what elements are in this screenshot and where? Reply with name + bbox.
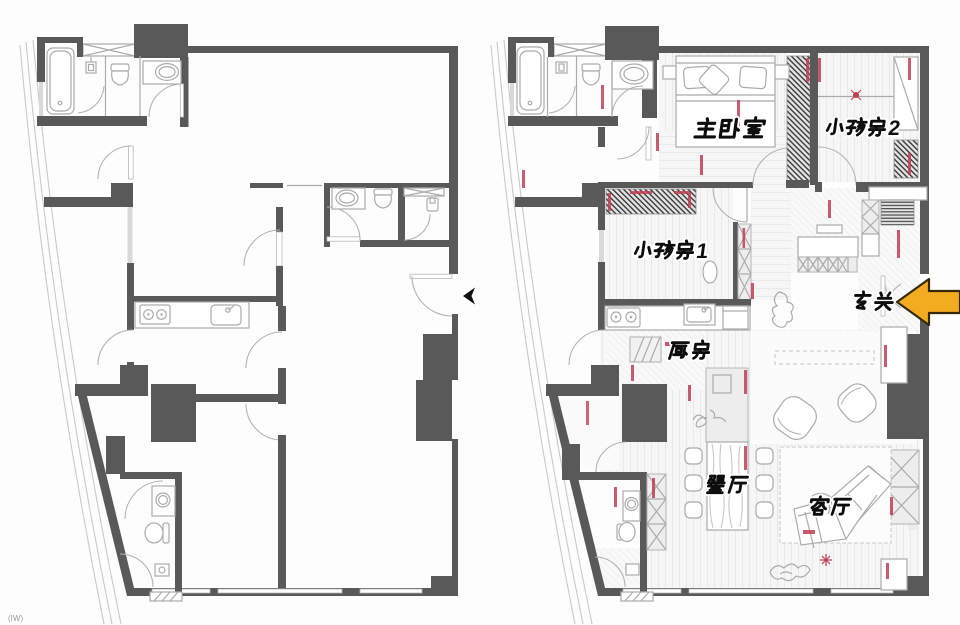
svg-text:(IW): (IW) <box>8 614 23 623</box>
